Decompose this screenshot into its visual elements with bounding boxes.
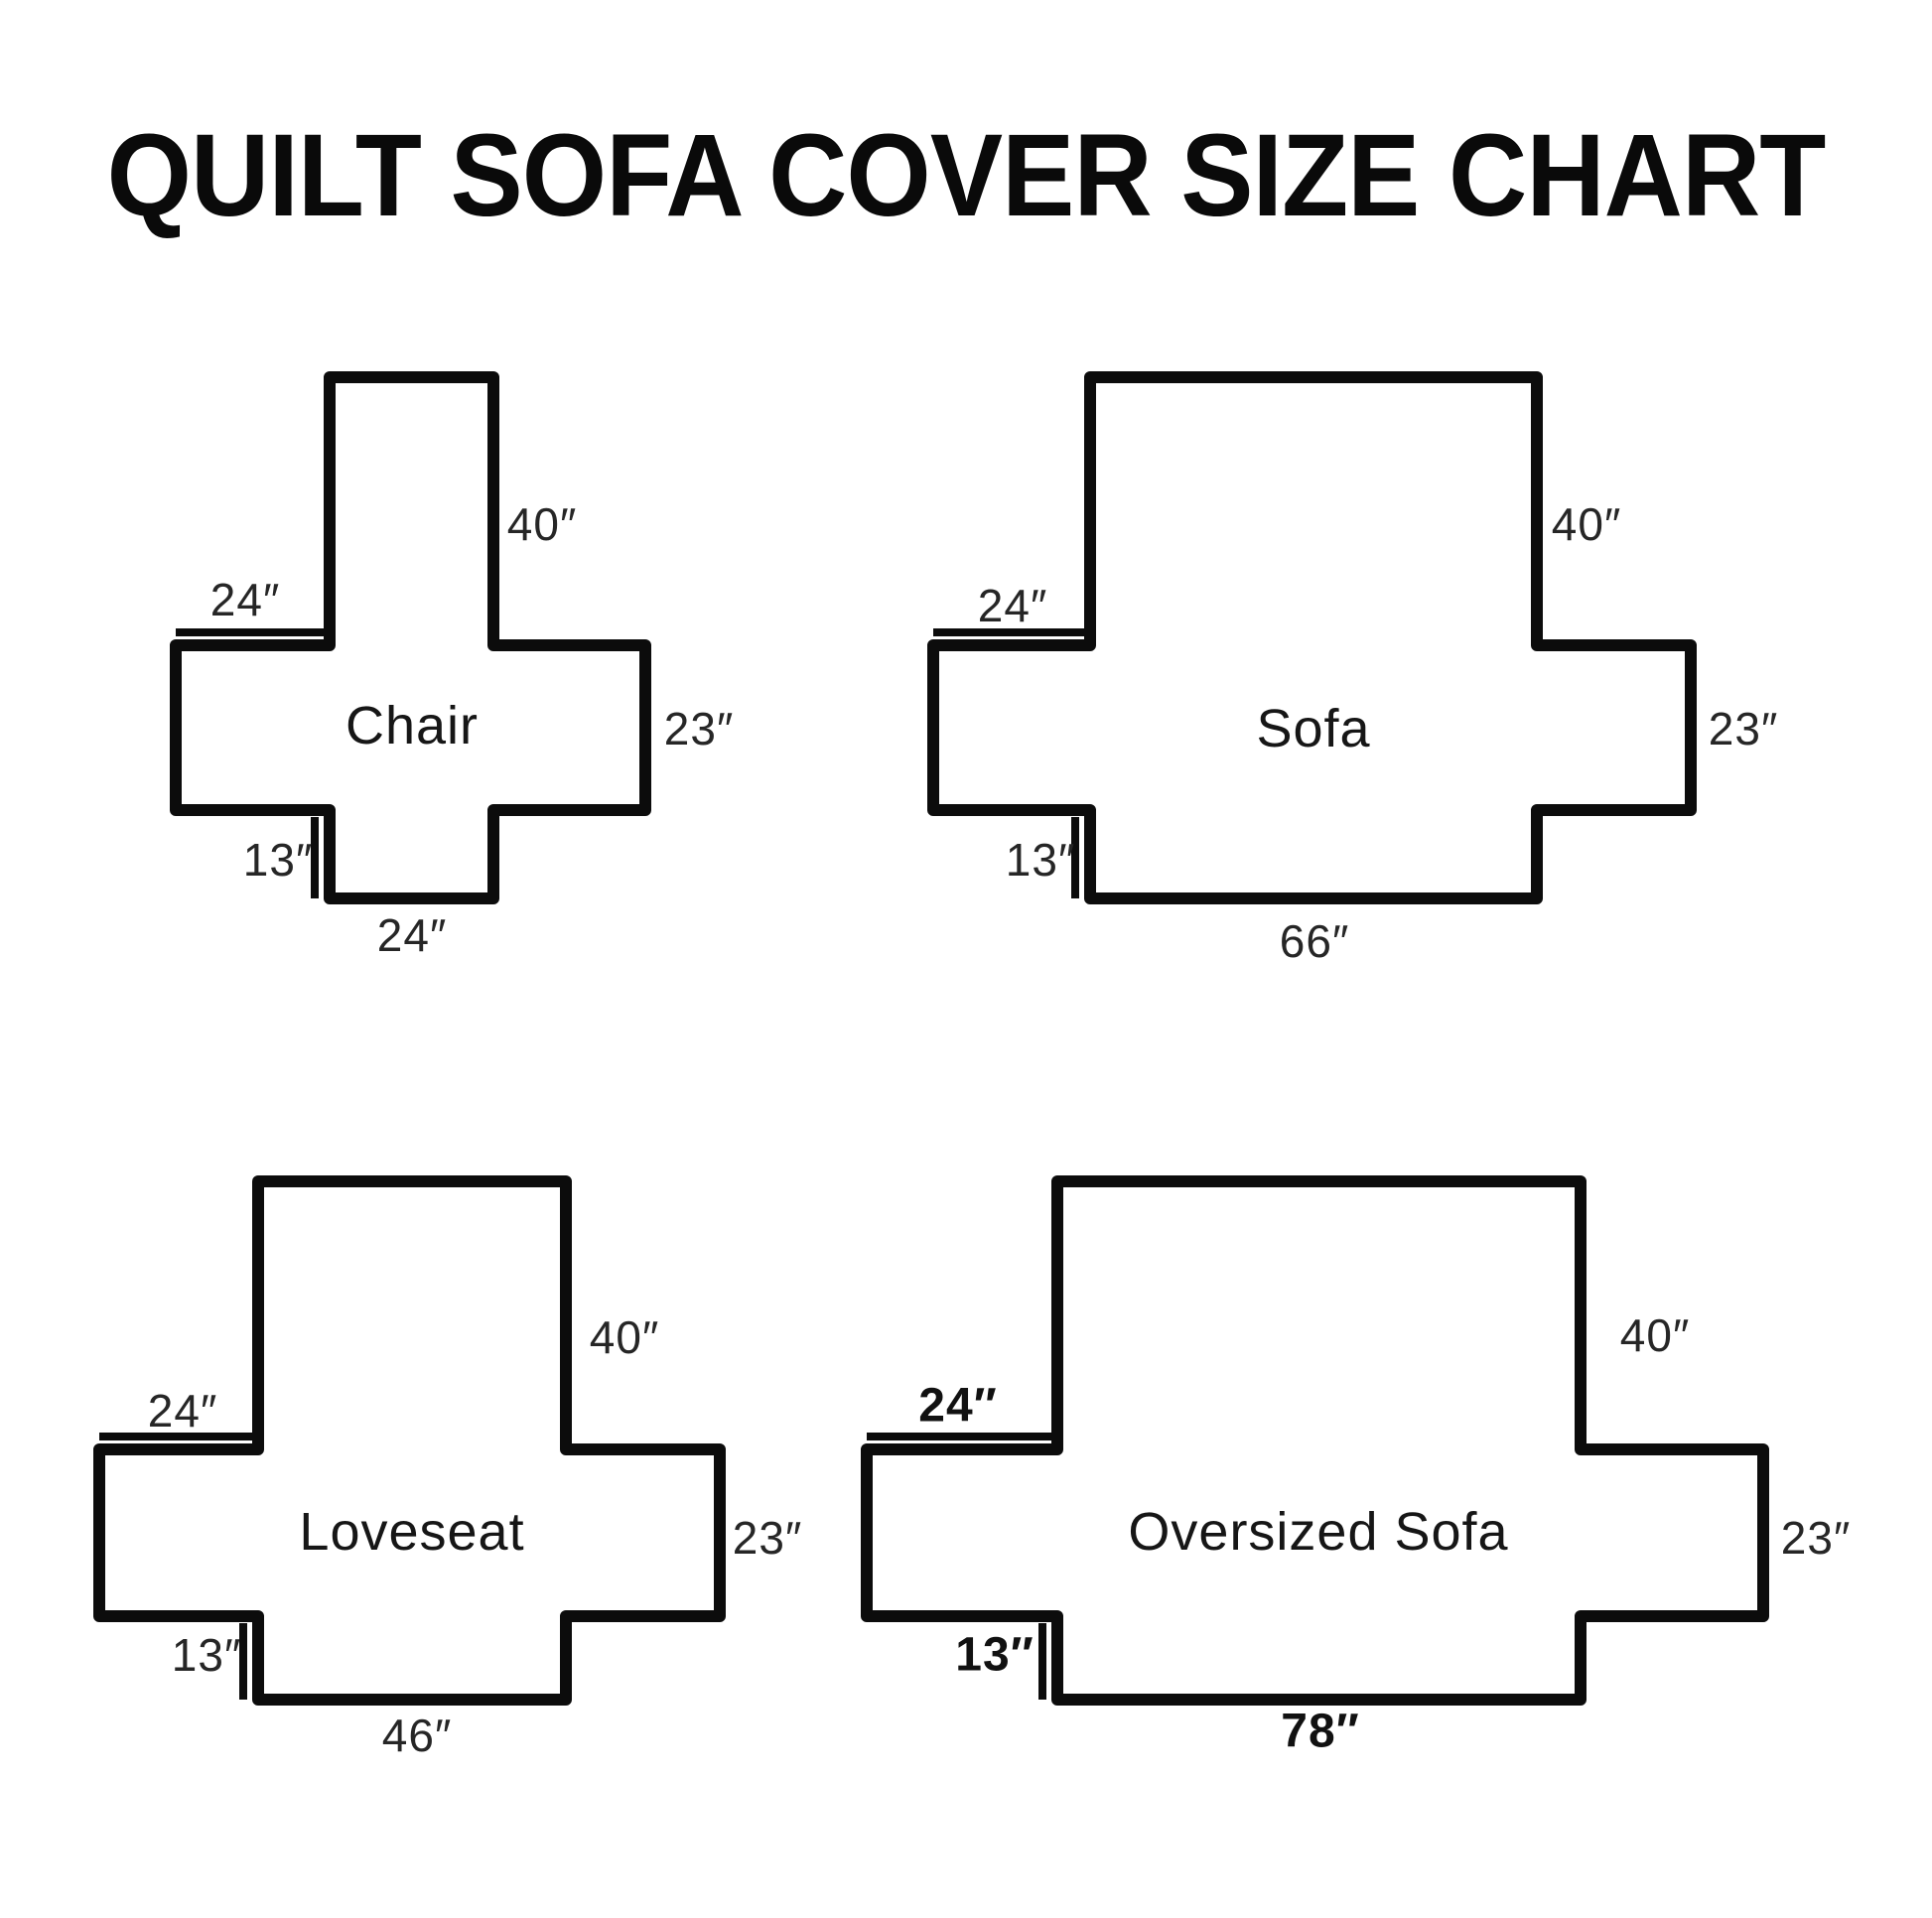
oversized-bottom-width-label: 78″ [1281,1705,1359,1759]
chair-front-drop-label: 13″ [243,833,313,887]
loveseat-bottom-width-label: 46″ [382,1709,452,1762]
loveseat-name-label: Loveseat [299,1501,524,1563]
chair-side-height-label: 23″ [664,702,734,755]
chair-name-label: Chair [345,695,479,756]
oversized-top-arm-label: 24″ [918,1379,997,1434]
chair-cover-outline [176,377,645,898]
sofa-back-height-label: 40″ [1552,497,1621,551]
loveseat-front-drop-label: 13″ [172,1628,241,1682]
loveseat-top-arm-label: 24″ [148,1384,217,1438]
size-chart-canvas: QUILT SOFA COVER SIZE CHART Chair 40″ 24… [0,0,1932,1918]
oversized-side-height-label: 23″ [1781,1511,1851,1565]
sofa-cover-outline [933,377,1691,898]
sofa-top-arm-label: 24″ [978,579,1047,632]
oversized-name-label: Oversized Sofa [1128,1501,1508,1563]
oversized-front-drop-label: 13″ [955,1628,1034,1683]
sofa-side-height-label: 23″ [1709,702,1778,755]
oversized-back-height-label: 40″ [1620,1308,1690,1362]
chair-top-arm-label: 24″ [210,573,280,626]
sofa-name-label: Sofa [1256,698,1370,759]
loveseat-side-height-label: 23″ [733,1511,802,1565]
chair-back-height-label: 40″ [507,497,577,551]
sofa-front-drop-label: 13″ [1006,833,1075,887]
sofa-bottom-width-label: 66″ [1280,914,1349,968]
loveseat-back-height-label: 40″ [590,1310,659,1364]
chair-bottom-width-label: 24″ [377,908,447,962]
